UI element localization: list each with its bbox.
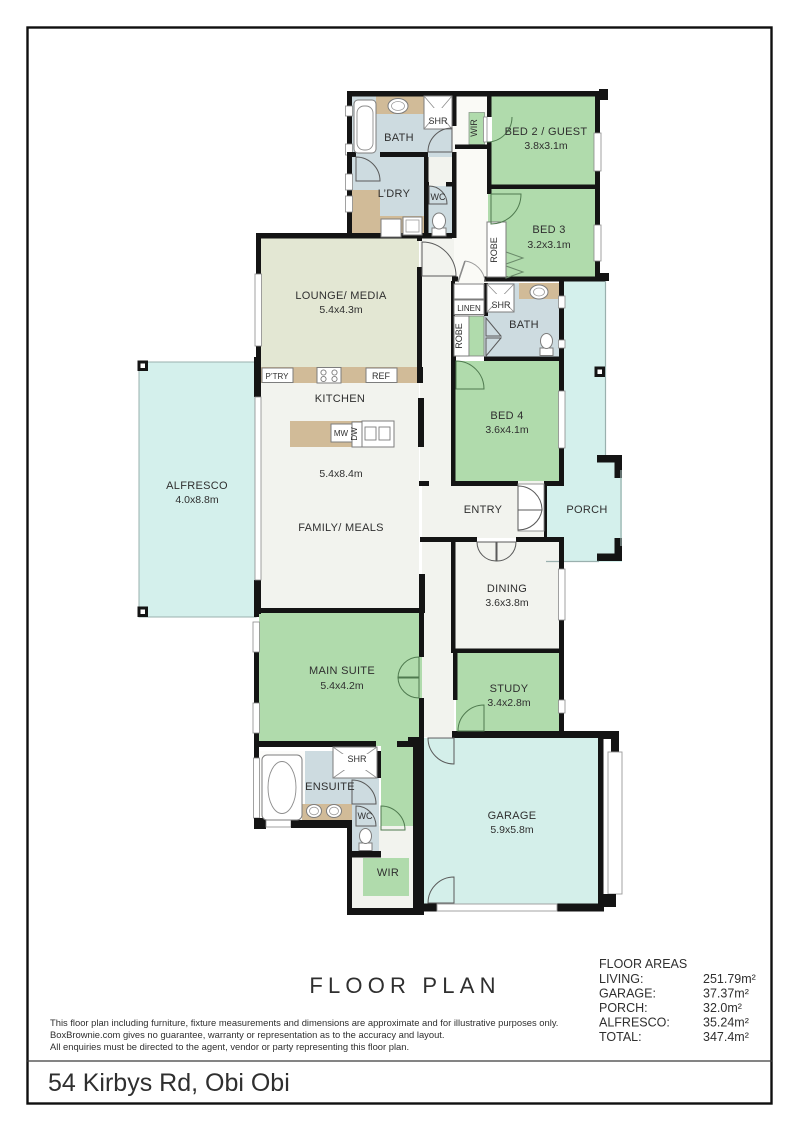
svg-text:3.4x2.8m: 3.4x2.8m [487,697,530,709]
svg-text:ENTRY: ENTRY [464,504,503,516]
svg-text:FLOOR PLAN: FLOOR PLAN [309,973,500,998]
svg-text:LIVING:: LIVING: [599,972,643,986]
svg-text:REF: REF [372,371,391,381]
svg-text:WC: WC [431,192,446,202]
svg-text:ALFRESCO: ALFRESCO [166,480,228,492]
svg-text:5.4x4.3m: 5.4x4.3m [319,304,362,316]
svg-text:SHR: SHR [428,116,448,126]
svg-text:GARAGE: GARAGE [488,810,537,822]
svg-text:WIR: WIR [377,867,399,879]
svg-text:L’DRY: L’DRY [378,188,411,200]
svg-text:LOUNGE/ MEDIA: LOUNGE/ MEDIA [295,290,387,302]
svg-text:251.79m²: 251.79m² [703,972,756,986]
svg-text:35.24m²: 35.24m² [703,1016,749,1030]
svg-text:3.6x4.1m: 3.6x4.1m [485,424,528,436]
svg-text:BED 4: BED 4 [490,410,523,422]
svg-text:ROBE: ROBE [489,237,499,263]
svg-text:SHR: SHR [491,300,511,310]
svg-text:PORCH: PORCH [566,504,607,516]
svg-text:WC: WC [358,811,373,821]
svg-text:STUDY: STUDY [490,683,529,695]
svg-text:P’TRY: P’TRY [266,372,290,381]
svg-text:KITCHEN: KITCHEN [315,393,365,405]
svg-text:BED 2 / GUEST: BED 2 / GUEST [505,126,588,138]
svg-text:5.4x8.4m: 5.4x8.4m [319,468,362,480]
svg-text:ROBE: ROBE [454,323,464,349]
svg-text:PORCH:: PORCH: [599,1001,648,1015]
svg-text:BATH: BATH [509,319,539,331]
svg-text:SHR: SHR [347,754,367,764]
svg-text:ENSUITE: ENSUITE [305,781,355,793]
svg-text:FAMILY/ MEALS: FAMILY/ MEALS [298,522,384,534]
svg-text:54 Kirbys Rd, Obi Obi: 54 Kirbys Rd, Obi Obi [48,1069,290,1097]
svg-text:All enquiries must be directed: All enquiries must be directed to the ag… [50,1041,409,1052]
svg-text:347.4m²: 347.4m² [703,1030,749,1044]
svg-text:4.0x8.8m: 4.0x8.8m [175,494,218,506]
svg-text:LINEN: LINEN [457,304,481,313]
svg-text:5.9x5.8m: 5.9x5.8m [490,824,533,836]
svg-text:This floor plan including furn: This floor plan including furniture, fix… [50,1017,558,1028]
svg-text:BED 3: BED 3 [532,224,565,236]
svg-text:DINING: DINING [487,583,527,595]
svg-text:GARAGE:: GARAGE: [599,987,656,1001]
svg-text:MW: MW [334,429,349,438]
svg-text:3.8x3.1m: 3.8x3.1m [524,140,567,152]
svg-text:BATH: BATH [384,132,414,144]
svg-text:ALFRESCO:: ALFRESCO: [599,1016,670,1030]
svg-text:MAIN SUITE: MAIN SUITE [309,665,375,677]
svg-text:FLOOR AREAS: FLOOR AREAS [599,957,687,971]
svg-text:32.0m²: 32.0m² [703,1001,742,1015]
svg-text:3.6x3.8m: 3.6x3.8m [485,597,528,609]
svg-text:5.4x4.2m: 5.4x4.2m [320,680,363,692]
svg-text:37.37m²: 37.37m² [703,987,749,1001]
svg-text:3.2x3.1m: 3.2x3.1m [527,239,570,251]
svg-text:DW: DW [350,427,359,441]
svg-text:TOTAL:: TOTAL: [599,1030,642,1044]
svg-text:WIR: WIR [469,119,479,137]
svg-text:BoxBrownie.com gives no guaran: BoxBrownie.com gives no guarantee, warra… [50,1029,445,1040]
